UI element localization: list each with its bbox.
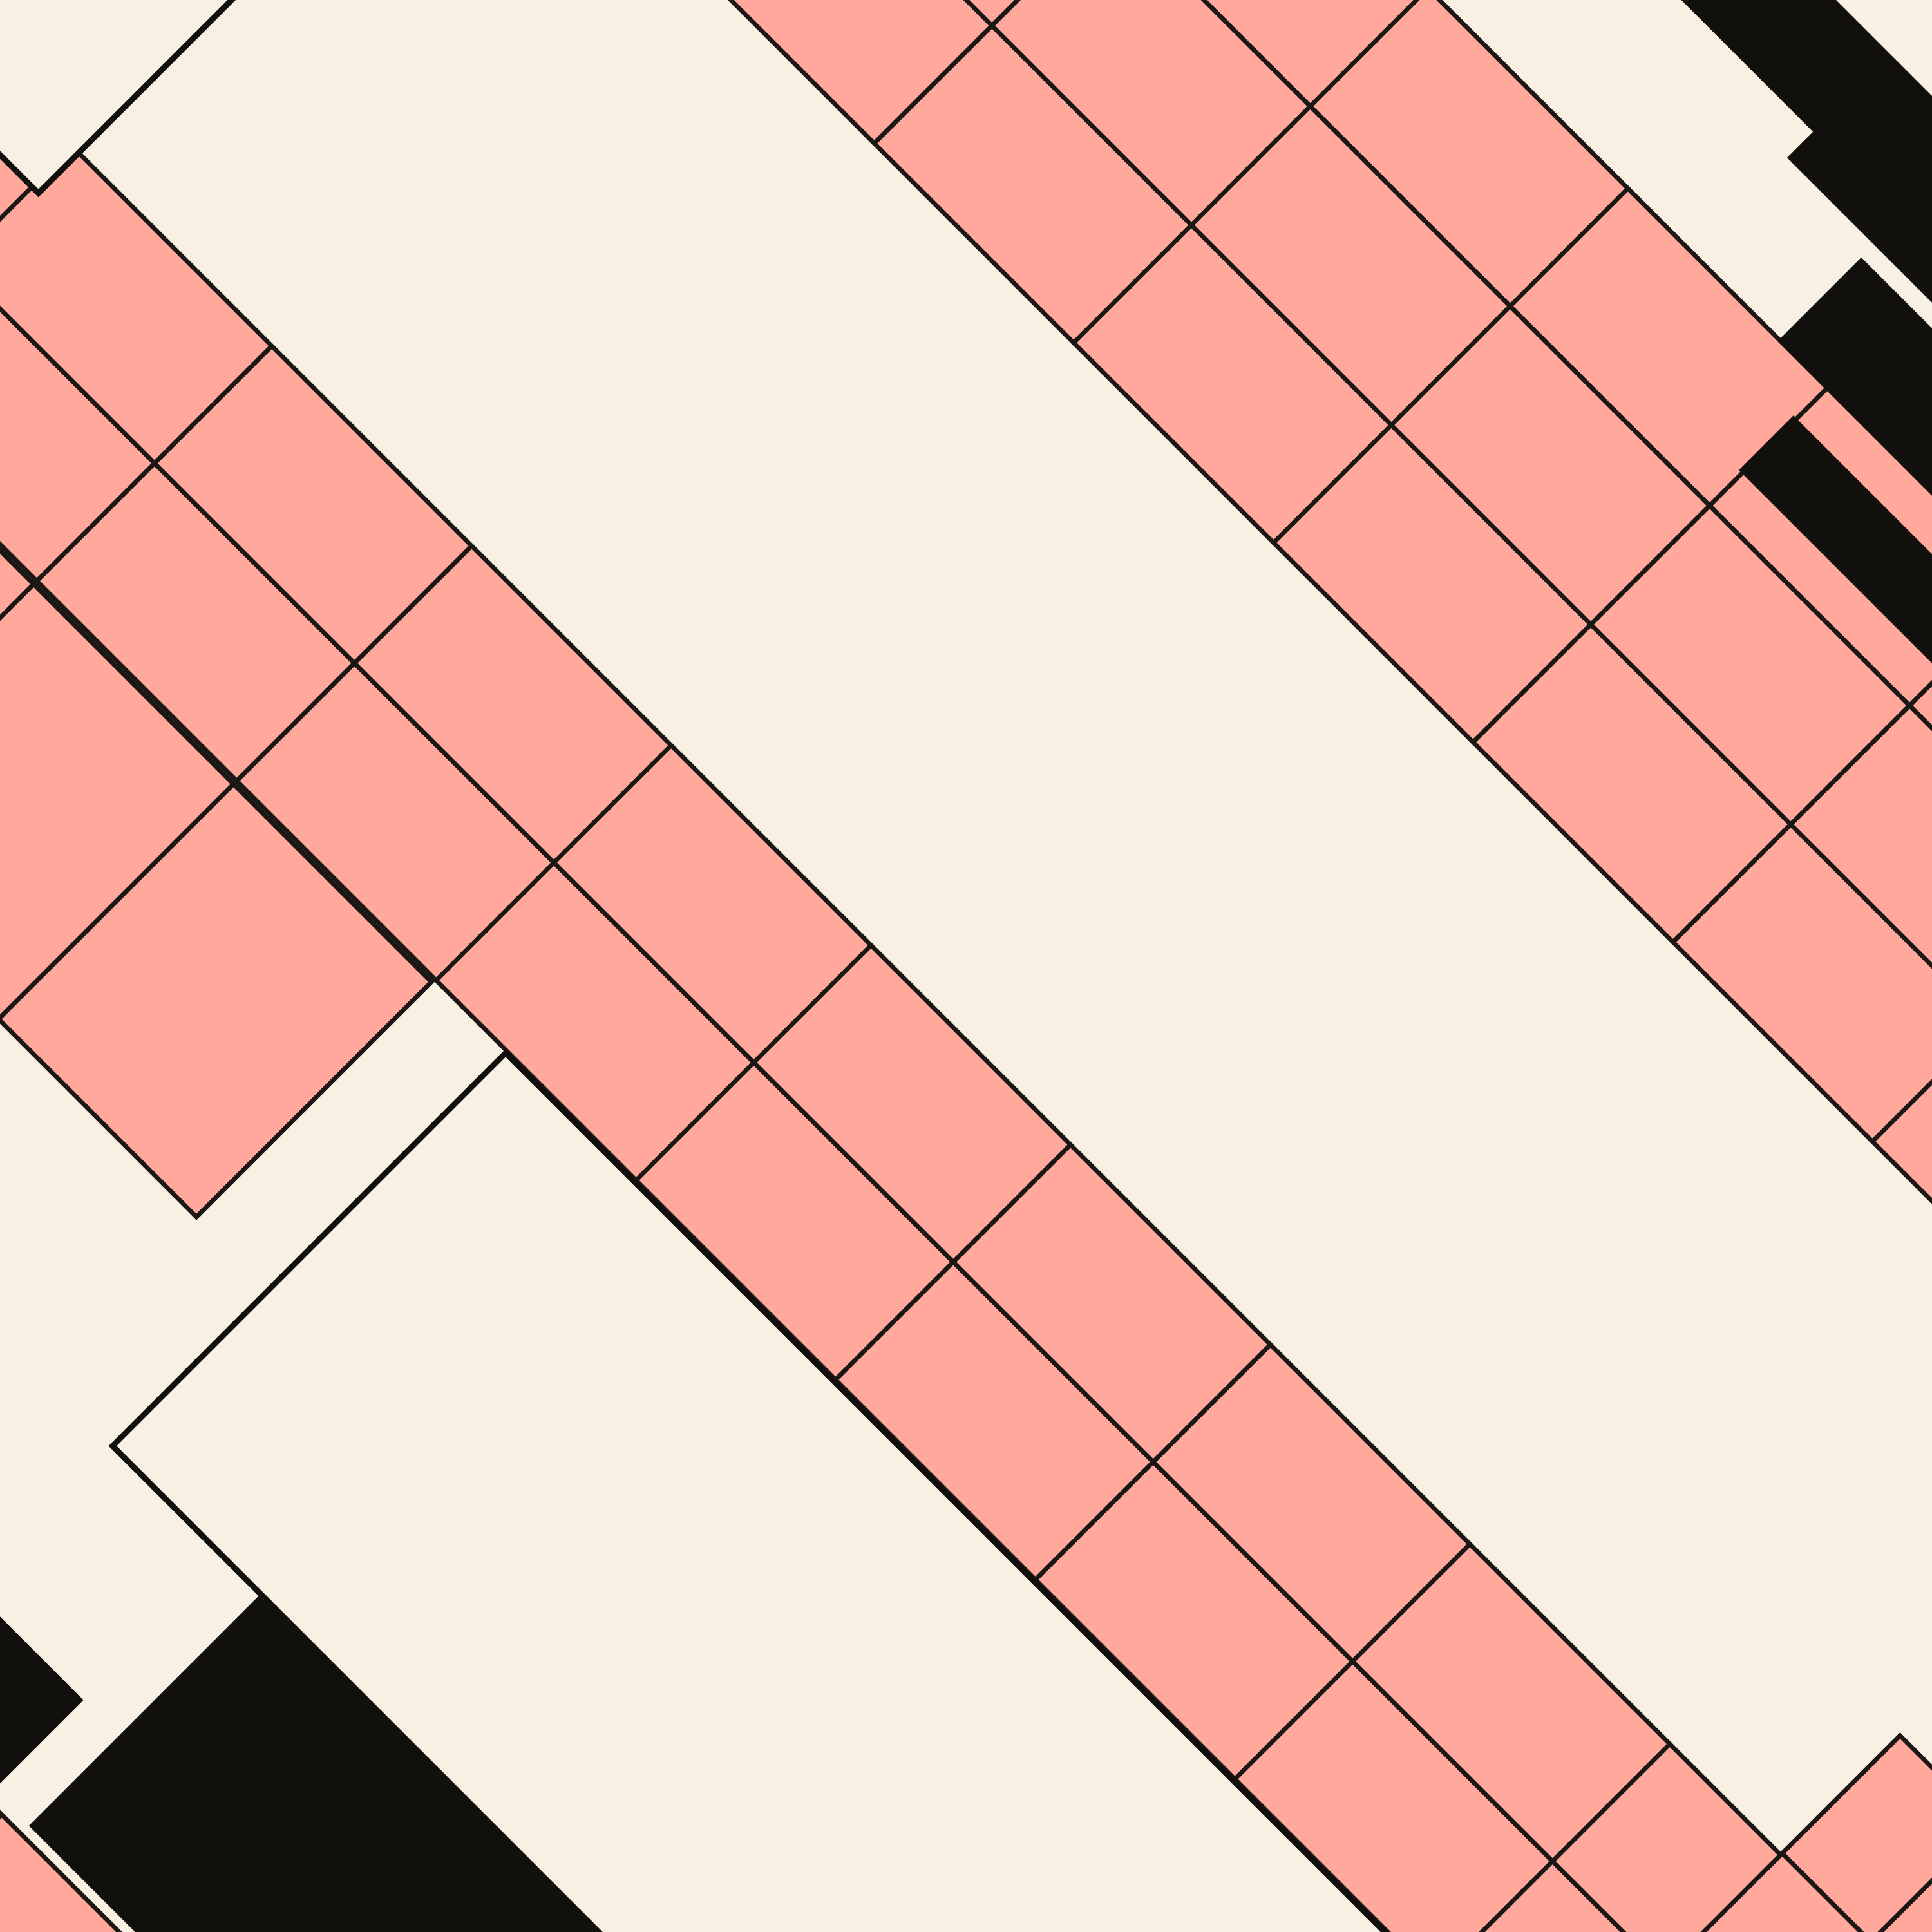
abstract-pattern-canvas — [0, 0, 1932, 1932]
pattern-svg — [0, 0, 1932, 1932]
